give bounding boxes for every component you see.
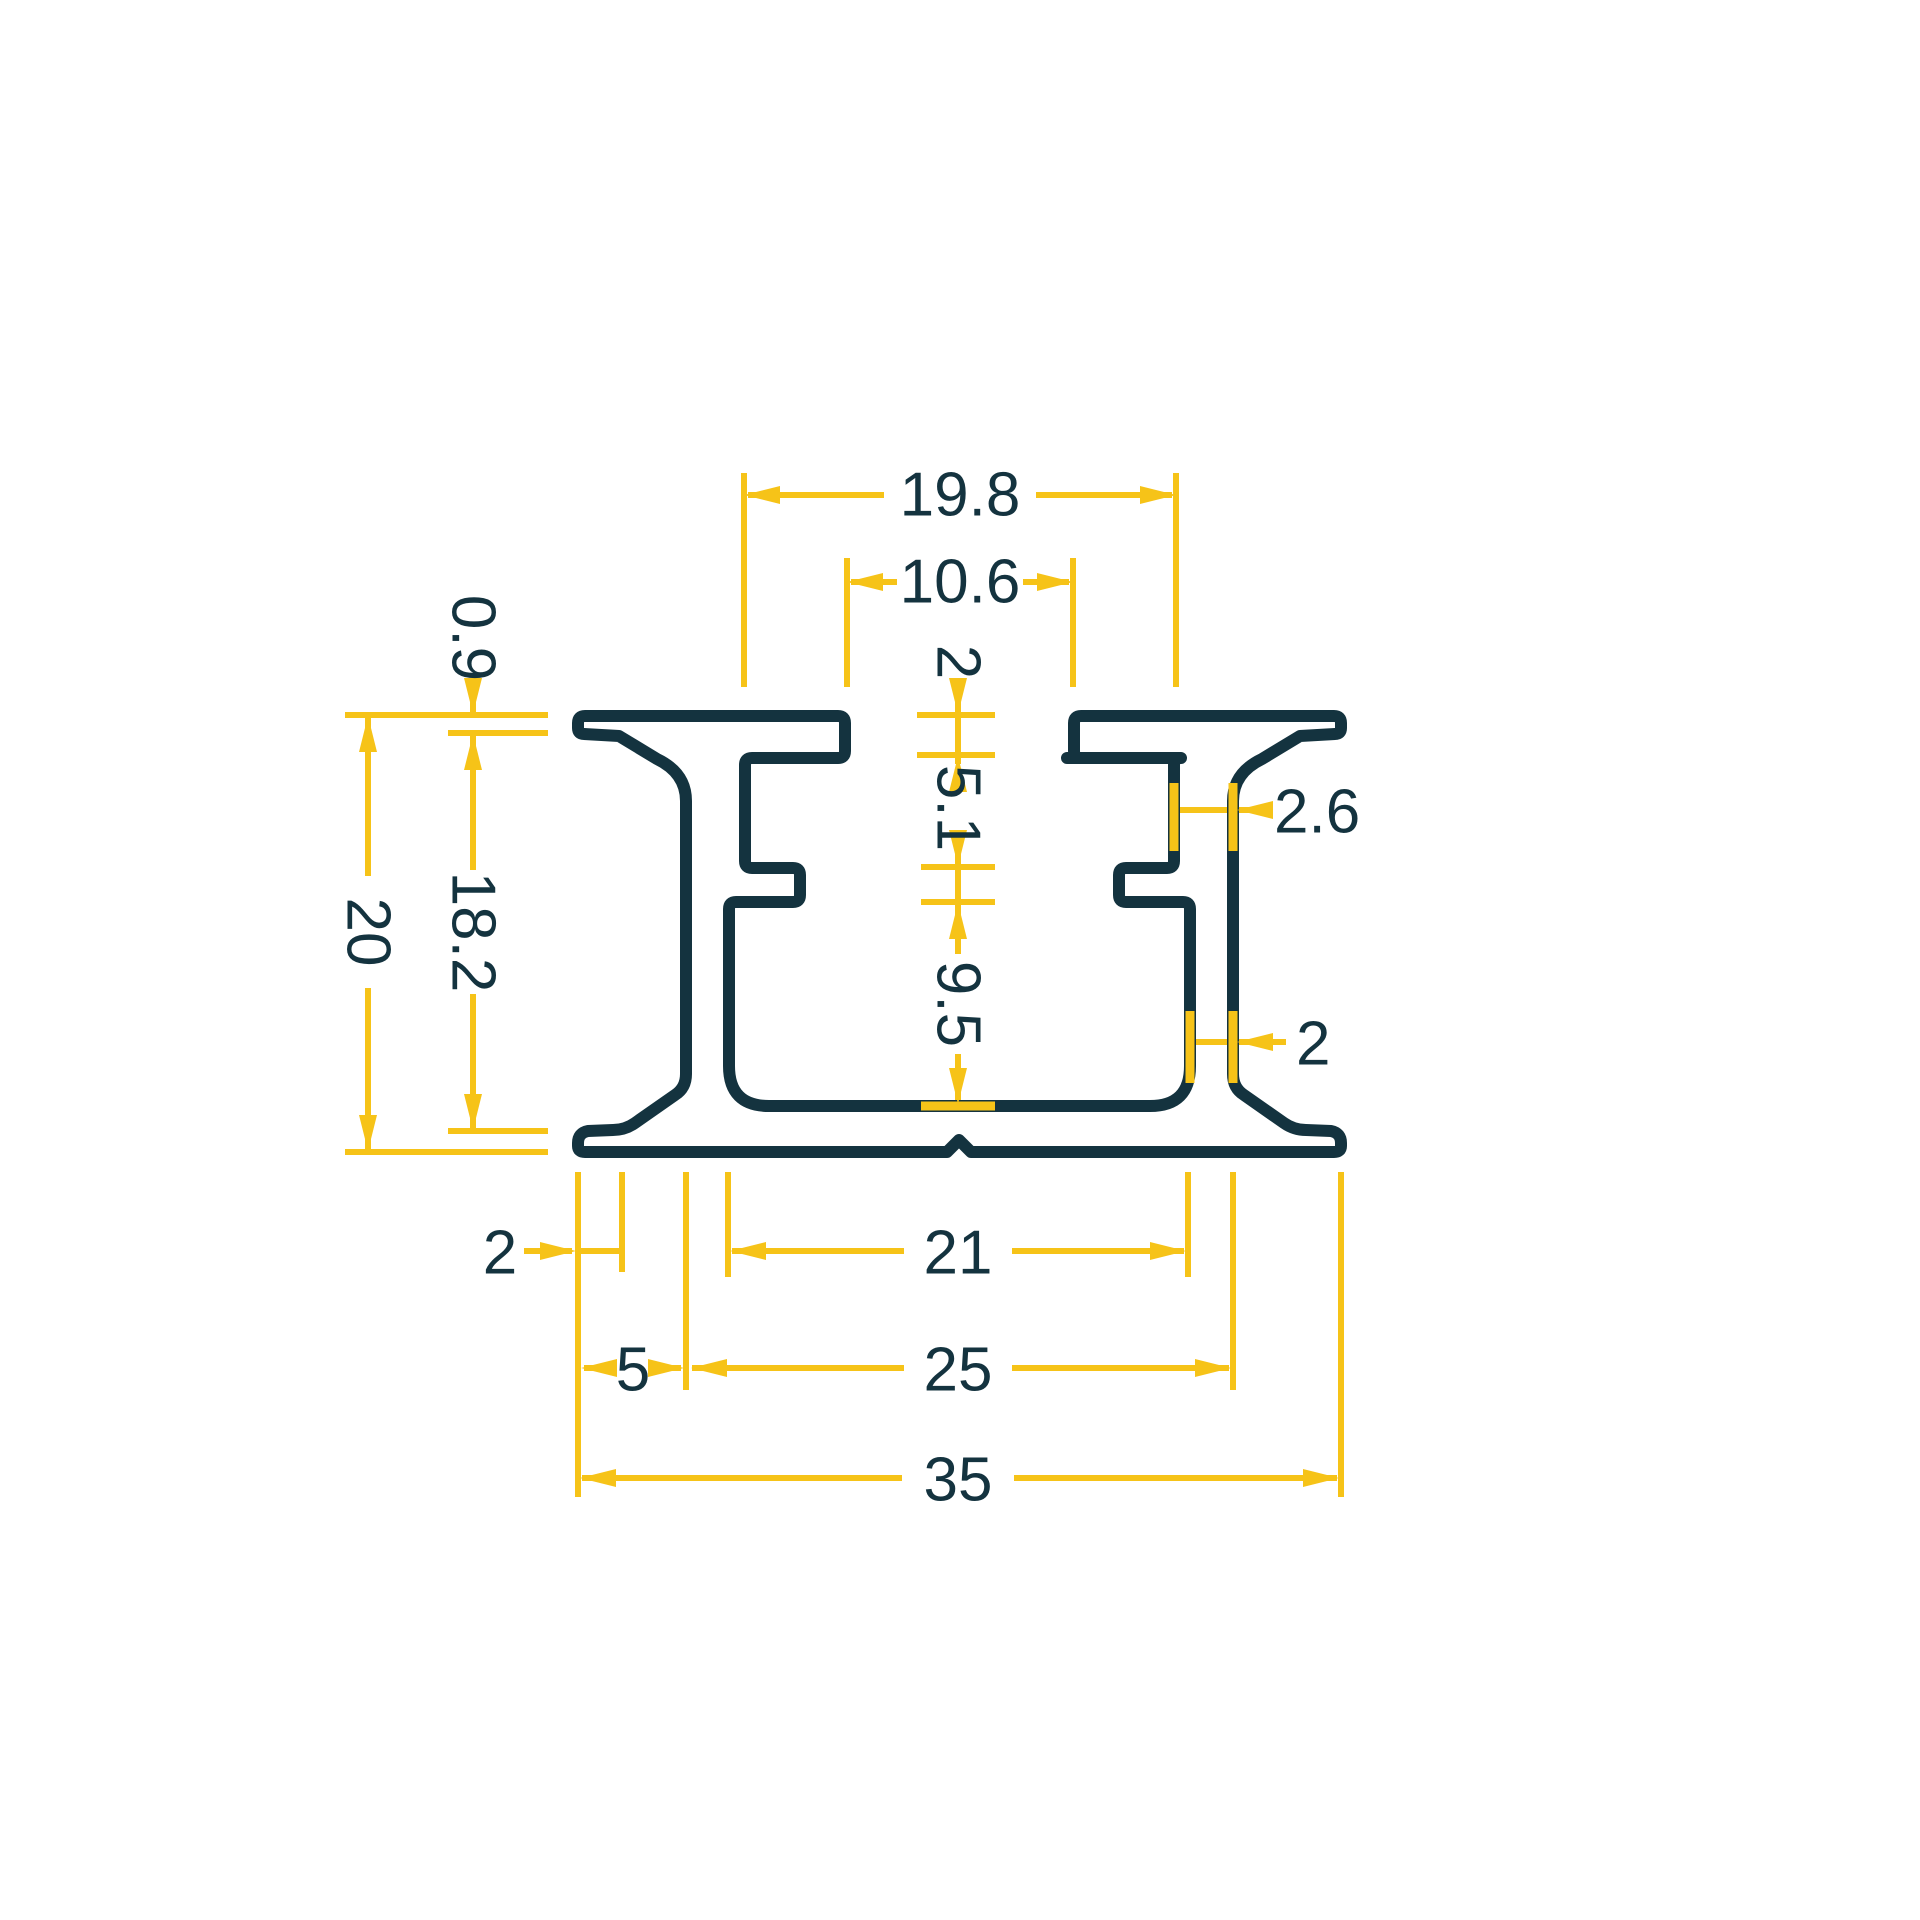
dimension-value-label: 35 — [924, 1446, 993, 1515]
dimension-value-label: 0.9 — [439, 595, 508, 681]
dimension-arrowhead-left — [847, 573, 883, 591]
dimension-arrowhead-left — [1237, 1033, 1273, 1051]
dimension-arrowhead-up — [949, 903, 967, 939]
dimension-value-label: 18.2 — [439, 872, 508, 993]
dimension-arrowhead-down — [949, 1068, 967, 1104]
extrusion-profile-drawing: 19.810.625.19.50.92018.22.6222152535 — [0, 0, 1920, 1920]
dimension-arrowhead-up — [464, 734, 482, 770]
dimension-value-label: 19.8 — [900, 461, 1021, 530]
technical-drawing-page: 19.810.625.19.50.92018.22.6222152535 — [0, 0, 1920, 1920]
dimension-arrowhead-down — [464, 1094, 482, 1130]
dimension-arrowhead-right — [1150, 1242, 1186, 1260]
dimension-arrowhead-left — [730, 1242, 766, 1260]
dimension-value-label: 25 — [924, 1336, 993, 1405]
dimension-value-label: 9.5 — [924, 961, 993, 1047]
dimension-value-label: 2 — [483, 1219, 517, 1288]
dimension-arrowhead-left — [580, 1469, 616, 1487]
dimension-arrowhead-right — [1140, 486, 1176, 504]
dimension-arrowhead-left — [691, 1359, 727, 1377]
dimension-value-label: 2 — [1296, 1010, 1330, 1079]
dimension-arrowhead-right — [1037, 573, 1073, 591]
dimension-arrowhead-right — [1303, 1469, 1339, 1487]
dimension-value-label: 5 — [616, 1336, 650, 1405]
dimension-arrowhead-down — [949, 678, 967, 714]
dimension-arrowhead-right — [540, 1242, 576, 1260]
dimension-value-label: 2.6 — [1274, 778, 1360, 847]
dimension-arrowhead-up — [359, 716, 377, 752]
dimension-value-label: 10.6 — [900, 548, 1021, 617]
dimension-value-label: 2 — [924, 645, 993, 679]
dimension-arrowhead-left — [744, 486, 780, 504]
dimension-arrowhead-down — [359, 1115, 377, 1151]
dimension-arrowhead-left — [1237, 801, 1273, 819]
dimension-value-label: 20 — [334, 898, 403, 967]
dimension-arrowhead-right — [1195, 1359, 1231, 1377]
dimension-arrowhead-left — [581, 1359, 617, 1377]
dimension-value-label: 21 — [924, 1219, 993, 1288]
dimension-arrowhead-down — [464, 678, 482, 714]
dimension-value-label: 5.1 — [924, 765, 993, 851]
dimension-arrowhead-right — [648, 1359, 684, 1377]
